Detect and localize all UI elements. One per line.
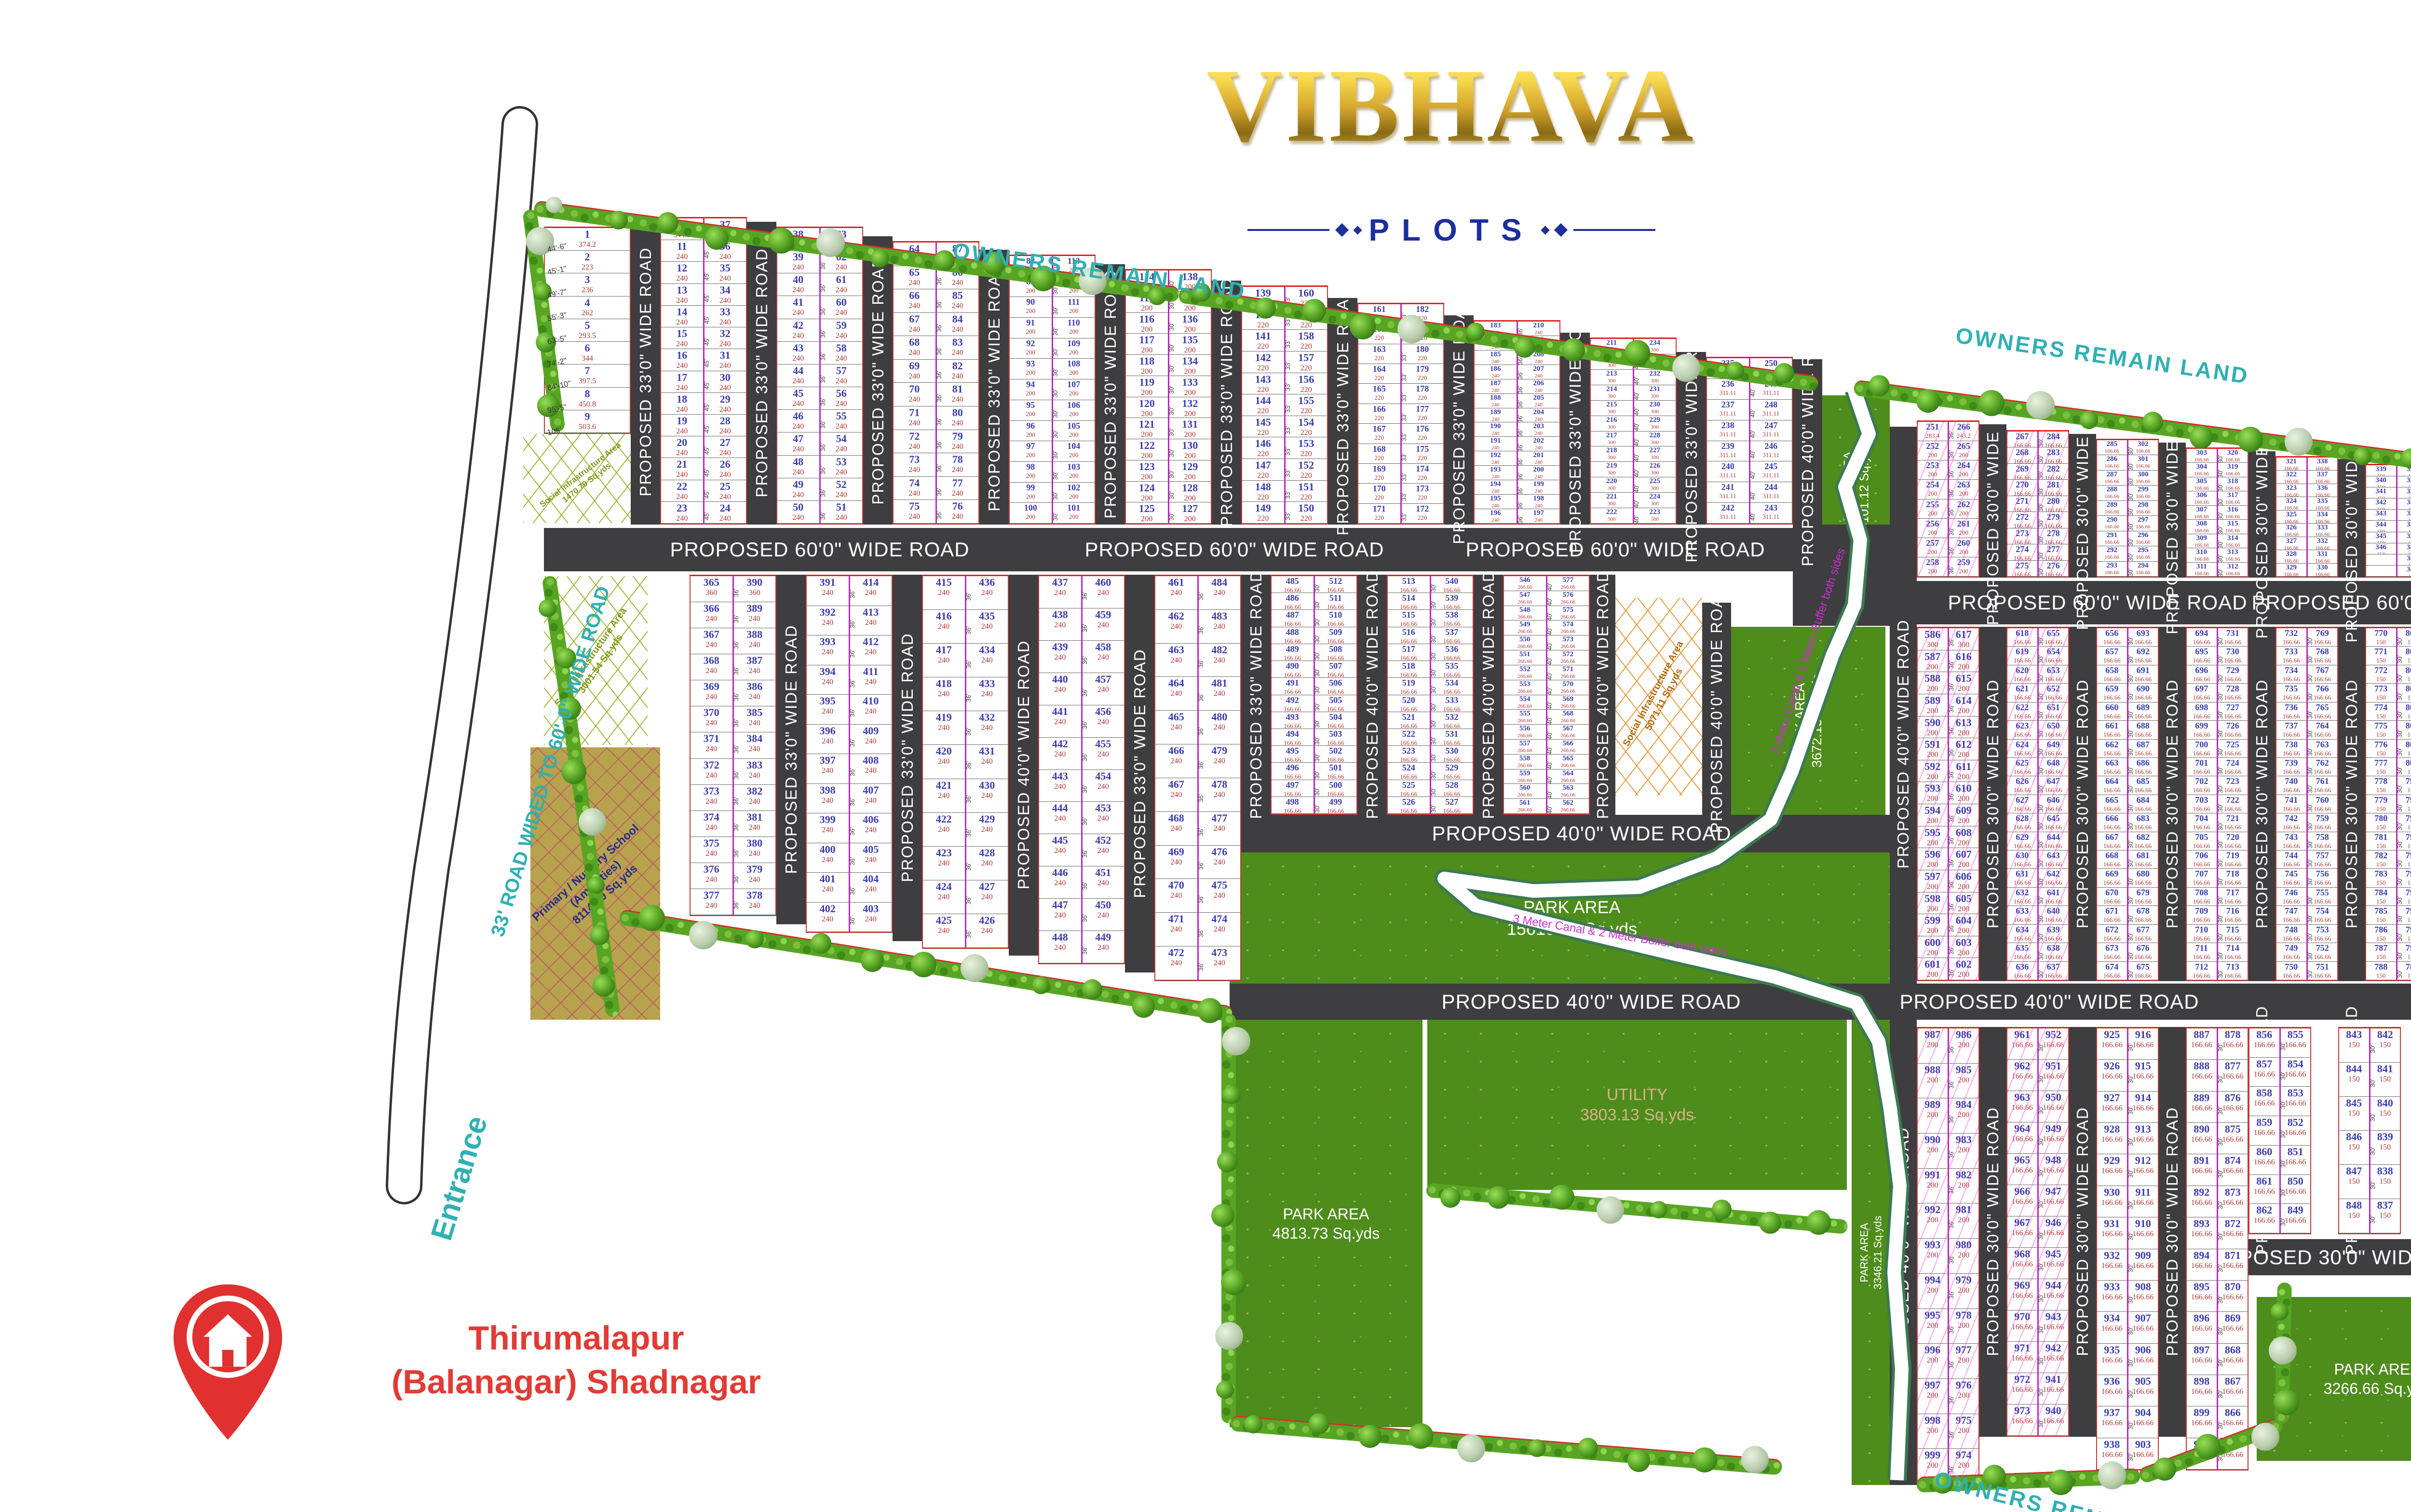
plot-cell: 416240: [923, 610, 965, 644]
plot-number: 945: [2039, 1248, 2069, 1260]
plot-cell: 742166.66: [2276, 813, 2306, 832]
plot-cell: 10220030': [1053, 483, 1095, 503]
plot-area: 150: [2366, 768, 2396, 776]
plot-width-dim: 30': [2308, 767, 2314, 775]
plot-number: 186: [1475, 365, 1517, 373]
plot-width-dim: 30': [2308, 915, 2314, 923]
tree-icon: [657, 212, 678, 233]
plot-area: 266.66: [1547, 807, 1589, 813]
plot-number: 528: [1431, 780, 1473, 790]
plot-cell: 760166.6630': [2308, 795, 2338, 813]
plot-number: 487: [1272, 610, 1314, 620]
plot-cell: 18022033': [1402, 344, 1444, 364]
plot-area: 240: [1083, 783, 1124, 791]
plot-area: 200: [1918, 817, 1948, 825]
plot-cell: 558266.66: [1504, 755, 1546, 769]
plot-cell: 42724036': [966, 880, 1008, 914]
plot-number: 223: [1634, 508, 1676, 516]
plot-width-dim: 30': [2218, 540, 2224, 548]
plot-number: 133: [1169, 376, 1211, 389]
plot-area: 266.66: [1504, 778, 1546, 783]
plot-cell: 672166.66: [2097, 925, 2127, 943]
plot-width-dim: 30': [2128, 952, 2134, 960]
plot-area: 150: [2339, 1041, 2369, 1050]
plot-width-dim: 40': [1547, 642, 1553, 650]
plot-width-dim: 30': [2039, 1294, 2045, 1302]
plot-width-dim: 30': [2397, 674, 2403, 682]
plot-area: 150: [2366, 898, 2396, 905]
plot-cell: 73240: [894, 453, 935, 477]
plot-cell: 100200: [1010, 503, 1052, 524]
plot-cell: 765166.6630': [2308, 702, 2338, 721]
plot-number: 67: [894, 313, 935, 325]
plot-number: 600: [1918, 936, 1948, 949]
plot-cell: 2524045': [704, 480, 746, 502]
plot-width-dim: 40': [1634, 500, 1640, 508]
plot-number: 851: [2281, 1146, 2311, 1158]
plot-width-dim: 36': [1199, 828, 1205, 836]
plot-cell: 966166.66: [2007, 1185, 2037, 1216]
plot-cell: 564266.6640': [1547, 769, 1589, 784]
plot-number: 892: [2187, 1186, 2217, 1199]
plot-area: 166.66: [2097, 731, 2127, 739]
plot-width-dim: 30': [2370, 1079, 2376, 1087]
plot-area: 200: [1918, 1216, 1948, 1225]
plot-cell: 773150: [2366, 684, 2396, 702]
plot-number: 996: [1918, 1344, 1948, 1356]
plot-number: 157: [1286, 351, 1327, 364]
plot-column: 485166.66486166.66487166.66488166.664891…: [1272, 576, 1314, 814]
plot-cell: 312166.6630': [2218, 563, 2248, 577]
plot-number: 395: [807, 695, 849, 707]
plot-width-dim: 36': [1199, 592, 1205, 600]
plot-number: 380: [734, 837, 776, 850]
plot-width-dim: 33': [1402, 513, 1408, 521]
plot-area: 200: [1918, 1427, 1948, 1435]
plot-area: 240: [777, 422, 819, 431]
plot-width-dim: 36': [1083, 785, 1088, 794]
plot-number: 452: [1083, 834, 1124, 847]
plot-cell: 272166.66: [2007, 512, 2037, 528]
plot-number: 287: [2097, 471, 2127, 479]
plot-width-dim: 30': [2128, 729, 2134, 738]
plot-cell: 678166.6630': [2128, 906, 2158, 924]
plot-number: 593: [1918, 782, 1948, 795]
plot-number: 172: [1402, 504, 1444, 514]
plot-cell: 305166.66: [2187, 477, 2217, 491]
plot-number: 408: [850, 754, 892, 767]
tree-icon: [1358, 1425, 1382, 1448]
plot-cell: 79315030': [2397, 888, 2411, 906]
plot-cell: 2824045': [704, 415, 746, 436]
plot-cell: 945166.6630': [2039, 1248, 2069, 1279]
plot-number: 105: [1053, 421, 1095, 431]
tree-icon: [546, 197, 562, 213]
plot-cell: 741166.66: [2276, 795, 2306, 813]
plot-cell: 696166.66: [2187, 665, 2217, 684]
plot-cell: 766166.6630': [2308, 684, 2338, 702]
plot-cell: 761166.6630': [2308, 776, 2338, 795]
plot-cell: 534166.6630': [1431, 678, 1473, 695]
plot-cell: 518166.66: [1388, 661, 1430, 678]
plot-width-dim: 33': [1286, 405, 1291, 413]
plot-number: 893: [2187, 1217, 2217, 1230]
plot-number: 526: [1388, 797, 1430, 807]
plot-number: 82: [937, 360, 979, 372]
plot-cell: 329166.66: [2276, 564, 2306, 577]
plot-area: 166.66: [2007, 442, 2037, 447]
plot-cell: 467240: [1155, 778, 1197, 812]
plot-number: 464: [1155, 677, 1197, 689]
plot-number: 529: [1431, 763, 1473, 773]
plot-number: 135: [1169, 334, 1211, 346]
tree-icon: [1869, 375, 1890, 396]
plot-width-dim: 30': [2308, 674, 2314, 682]
plot-width-dim: 30': [2039, 439, 2045, 447]
plot-number: 513: [1388, 576, 1430, 586]
plot-cell: 374240: [691, 811, 732, 837]
plot-area: 200: [1169, 367, 1211, 376]
plot-cell: 61020036': [1949, 782, 1979, 804]
plot-area: 200: [1918, 795, 1948, 803]
plot-number: 352: [2397, 510, 2411, 518]
plot-area: 240: [1039, 783, 1081, 791]
plot-width-dim: 40': [1547, 657, 1553, 665]
plot-number: 778: [2366, 776, 2396, 786]
plot-cell: 670166.66: [2097, 888, 2127, 906]
plot-number: 466: [1155, 744, 1197, 757]
plot-cell: 634166.66: [2007, 925, 2037, 943]
plot-cell: 724166.6630': [2218, 758, 2248, 776]
plot-cell: 376240: [691, 863, 732, 889]
plot-area: 300: [1591, 516, 1633, 522]
plot-cell: 98420036': [1949, 1098, 1979, 1134]
plot-cell: 400240: [807, 843, 849, 873]
plot-width-dim: 30': [2218, 1232, 2224, 1241]
plot-cell: 45324036': [1083, 802, 1124, 834]
plot-number: 340: [2366, 476, 2396, 485]
plot-cell: 256200: [1918, 519, 1948, 538]
plot-cell: 40324036': [850, 903, 892, 932]
plot-width-dim: 30': [2397, 692, 2403, 701]
plot-width-dim: 40': [1750, 389, 1756, 397]
plot-area: 166.66: [2187, 486, 2217, 491]
plot-area: 166.66: [2187, 556, 2217, 562]
plot-number: 93: [1010, 359, 1052, 369]
plot-cell: 644166.6630': [2039, 832, 2069, 850]
plot-number: 44: [777, 364, 819, 377]
plot-area: 220: [1286, 407, 1327, 416]
plot-area: 166.66: [2007, 750, 2037, 757]
plot-area: 166.66: [2007, 935, 2037, 943]
plot-width-dim: 30': [2308, 748, 2314, 756]
plot-cell: 336166.66: [2308, 484, 2338, 497]
tree-icon: [1578, 1438, 1598, 1458]
plot-width-dim: 30': [2281, 1130, 2287, 1138]
road-label: PROPOSED 30'0" WIDE ROAD: [2073, 365, 2092, 645]
plot-area: 266.66: [1547, 644, 1589, 649]
plot-number: 465: [1155, 711, 1197, 723]
plot-area: 166.66: [2097, 638, 2127, 646]
plot-width-dim: 30': [2128, 1107, 2134, 1115]
plot-area: 166.66: [2187, 694, 2217, 702]
plot-cell: 10420030': [1053, 441, 1095, 462]
plot-area: 300: [1634, 409, 1676, 415]
plot-area: 166.66: [2097, 448, 2127, 454]
plot-number: 874: [2218, 1154, 2248, 1167]
plot-area: 166.66: [2276, 638, 2306, 646]
plot-width-dim: 40': [1547, 746, 1553, 755]
plot-number: 21: [661, 458, 703, 471]
plot-number: 434: [966, 644, 1008, 656]
plot-cell: 538166.6630': [1431, 610, 1473, 627]
road-label: PROPOSED 40'0" WIDE ROAD: [1594, 554, 1612, 834]
plot-number: 913: [2128, 1123, 2158, 1135]
plot-cell: 20324036': [1518, 422, 1560, 437]
plot-width-dim: 30': [2039, 729, 2045, 738]
plot-width-dim: 40': [1547, 613, 1553, 621]
plot-cell: 6124036': [821, 273, 863, 296]
plot-number: 13: [661, 284, 703, 297]
plot-width-dim: 30': [2039, 503, 2045, 512]
plot-number: 147: [1242, 459, 1284, 472]
plot-cell: 660166.66: [2097, 702, 2127, 721]
plot-width-dim: 30': [2308, 729, 2314, 738]
plot-cell: 625166.66: [2007, 758, 2037, 776]
plot-cell: 326166.66: [2276, 524, 2306, 537]
plot-area: 240: [691, 641, 732, 649]
plot-cell: 80415030': [2397, 684, 2411, 702]
plot-cell: 391240: [807, 576, 849, 606]
plot-number: 491: [1272, 678, 1314, 688]
plot-area: 240: [894, 372, 935, 381]
plot-number: 888: [2187, 1060, 2217, 1072]
plot-number: 57: [821, 364, 863, 377]
plot-width-dim: 30': [2308, 655, 2314, 663]
plot-area: 166.66: [2007, 953, 2037, 961]
plot-width-dim: 30': [1431, 754, 1437, 762]
plot-column: 961166.66962166.66963166.66964166.669651…: [2007, 1028, 2037, 1436]
plot-width-dim: 30': [2218, 1075, 2224, 1083]
plot-cell: 307166.66: [2187, 506, 2217, 520]
plot-number: 636: [2007, 962, 2037, 972]
plot-width-dim: 30': [2397, 711, 2403, 719]
plot-cell: 513166.66: [1388, 576, 1430, 593]
plot-width-dim: 30': [2039, 471, 2045, 479]
plot-number: 933: [2097, 1281, 2127, 1293]
plot-width-dim: 45': [704, 250, 710, 258]
plot-cell: 22430040': [1634, 493, 1676, 508]
plot-cell: 254200: [1918, 480, 1948, 499]
plot-cell: 279166.6630': [2039, 512, 2069, 528]
plot-cell: 551266.66: [1504, 650, 1546, 665]
plot-cell: 647166.6630': [2039, 776, 2069, 795]
plot-cell: 485166.66: [1272, 576, 1314, 593]
road-label: PROPOSED 40'0" WIDE ROAD: [1894, 1112, 1912, 1391]
plot-number: 428: [966, 847, 1008, 859]
plot-width-dim: 40': [1750, 450, 1756, 459]
road-label: PROPOSED 33'0" WIDE ROAD: [869, 240, 887, 520]
plot-cell: 516166.66: [1388, 627, 1430, 644]
road-label: PROPOSED 33'0" WIDE ROAD: [637, 232, 655, 512]
plot-column: 303166.66304166.66305166.66306166.663071…: [2187, 449, 2217, 577]
plot-area: 150: [2366, 657, 2396, 664]
plot-strip: 3391503401503411503421503431503441503451…: [2365, 464, 2411, 578]
plot-area: 240: [966, 792, 1008, 800]
plot-cell: 218300: [1591, 446, 1633, 462]
area-label: UTILITY3803.13 Sq.yds: [1580, 1084, 1694, 1125]
plot-cell: 61320036': [1949, 716, 1979, 739]
plot-cell: 571266.6640': [1547, 665, 1589, 680]
plot-area: 240: [691, 693, 732, 702]
plot-area: 240: [661, 253, 703, 261]
plot-number: 70: [894, 383, 935, 395]
plot-area: 240: [821, 332, 863, 340]
plot-area: 240: [850, 737, 892, 746]
plot-number: 32: [704, 327, 746, 340]
plot-area: 240: [1083, 847, 1124, 855]
plot-area: 240: [1083, 911, 1124, 920]
plot-number: 413: [850, 606, 892, 619]
plot-area: 240: [661, 405, 703, 414]
plot-column: 3824039240402404124042240432404424045240…: [777, 228, 819, 524]
plot-number: 29: [704, 393, 746, 405]
plot-number: 783: [2366, 869, 2396, 879]
plot-number: 328: [2276, 550, 2306, 558]
plot-cell: 532166.6630': [1431, 712, 1473, 729]
plot-area: 166.66: [2187, 861, 2217, 868]
plot-number: 710: [2187, 925, 2217, 935]
plot-number: 274: [2007, 544, 2037, 554]
plot-cell: 17522033': [1402, 444, 1444, 464]
road-label: PROPOSED 30'0" WIDE ROAD: [2073, 664, 2092, 944]
plot-number: 200: [1518, 466, 1560, 474]
plot-number: 668: [2097, 850, 2127, 861]
plot-cell: 499166.6630': [1315, 797, 1357, 814]
plot-cell: 97620036': [1949, 1379, 1979, 1414]
plot-width-dim: 30': [2128, 1043, 2134, 1052]
plot-area: 240: [777, 468, 819, 477]
road-label: PROPOSED 33'0" WIDE ROAD: [1682, 298, 1701, 578]
plot-width-dim: 36': [1518, 444, 1524, 451]
plot-number: 221: [1591, 493, 1633, 501]
plot-cell: 43024036': [966, 779, 1008, 813]
plot-cell: 332166.66: [2308, 537, 2338, 550]
plot-cell: 17922033': [1402, 364, 1444, 384]
plot-number: 342: [2366, 499, 2396, 507]
plot-cell: 13620030': [1169, 313, 1211, 334]
plot-area: 220: [1402, 514, 1444, 522]
plot-area: 220: [1402, 434, 1444, 442]
plot-number: 516: [1388, 627, 1430, 637]
plot-width-dim: 45': [704, 425, 710, 433]
plot-area: 240: [1039, 589, 1081, 597]
plot-number: 349: [2397, 543, 2411, 552]
plot-area: 150: [2339, 1109, 2369, 1118]
plot-cell: 514166.66: [1388, 593, 1430, 610]
plot-number: 370: [691, 706, 732, 719]
plot-cell: 730166.6630': [2218, 647, 2248, 665]
plot-cell: 570266.6640': [1547, 680, 1589, 695]
plot-area: 240: [937, 513, 979, 521]
tree-icon: [1514, 337, 1535, 358]
diamond-icon: [1554, 223, 1568, 237]
plot-width-dim: 30': [2308, 970, 2314, 978]
plot-width-dim: 30': [2039, 877, 2045, 886]
plot-area: 240: [704, 493, 746, 501]
plot-width-dim: 30': [1315, 618, 1321, 626]
plot-width-dim: 36': [1949, 814, 1955, 823]
plot-cell: 47724036': [1199, 812, 1241, 846]
plot-cell: 740166.66: [2276, 776, 2306, 795]
plot-number: 96: [1010, 421, 1052, 431]
plot-area: 220: [1242, 450, 1284, 459]
plot-number: 659: [2097, 684, 2127, 694]
plot-cell: 876166.6630': [2218, 1092, 2248, 1123]
plot-cell: 23030040': [1634, 401, 1676, 416]
plot-cell: 12920030': [1169, 460, 1211, 482]
plot-number: 231: [1634, 385, 1676, 393]
plot-width-dim: 30': [2370, 1147, 2376, 1155]
plot-area: 200: [1169, 389, 1211, 397]
plot-cell: 241311.11: [1707, 482, 1749, 503]
plot-width-dim: 30': [1053, 513, 1059, 521]
plot-number: 577: [1547, 576, 1589, 584]
plot-cell: 328166.66: [2276, 550, 2306, 563]
plot-number: 998: [1918, 1414, 1948, 1427]
plot-cell: 663166.66: [2097, 758, 2127, 776]
plot-area: 166.66: [2187, 1356, 2217, 1365]
plot-area: 166.66: [1431, 705, 1473, 712]
plot-cell: 5424036': [821, 432, 863, 455]
plot-number: 481: [1199, 677, 1241, 689]
plot-width-dim: 30': [2218, 859, 2224, 867]
plot-number: 627: [2007, 795, 2037, 805]
plot-number: 483: [1199, 610, 1241, 622]
plot-width-dim: 36': [1518, 386, 1524, 393]
plot-area: 220: [1402, 454, 1444, 462]
plot-number: 205: [1518, 394, 1560, 402]
plot-number: 127: [1169, 502, 1211, 515]
plot-area: 166.66: [1431, 654, 1473, 661]
plot-number: 525: [1388, 780, 1430, 790]
plot-cell: 10320030': [1053, 462, 1095, 483]
plot-cell: 371240: [691, 732, 732, 758]
plot-area: 166.66: [2187, 1167, 2217, 1175]
plot-cell: 759166.6630': [2308, 813, 2338, 832]
plot-number: 310: [2187, 548, 2217, 556]
plot-width-dim: 36': [734, 823, 740, 831]
plot-area: 166.66: [2097, 479, 2127, 485]
plot-width-dim: 36': [1199, 626, 1205, 634]
plot-area: 240: [850, 619, 892, 627]
plot-width-dim: 30': [2218, 729, 2224, 738]
plot-cell: 5924036': [821, 319, 863, 342]
tree-icon: [768, 228, 794, 254]
plot-area: 240: [734, 693, 776, 702]
plot-number: 424: [923, 880, 965, 893]
plot-cell: 521166.66: [1388, 712, 1430, 729]
plot-number: 51: [821, 501, 863, 513]
road-label: PROPOSED 30'0" WIDE ROAD: [2073, 1092, 2092, 1371]
plot-cell: 675166.6630': [2128, 962, 2158, 980]
plot-width-dim: 30': [1053, 368, 1059, 377]
plot-width-dim: 36': [734, 589, 740, 597]
plot-width-dim: 30': [2218, 470, 2224, 477]
plot-area: 200: [1010, 513, 1052, 521]
plot-number: 671: [2097, 906, 2127, 916]
plot-cell: 15722033': [1286, 351, 1327, 373]
